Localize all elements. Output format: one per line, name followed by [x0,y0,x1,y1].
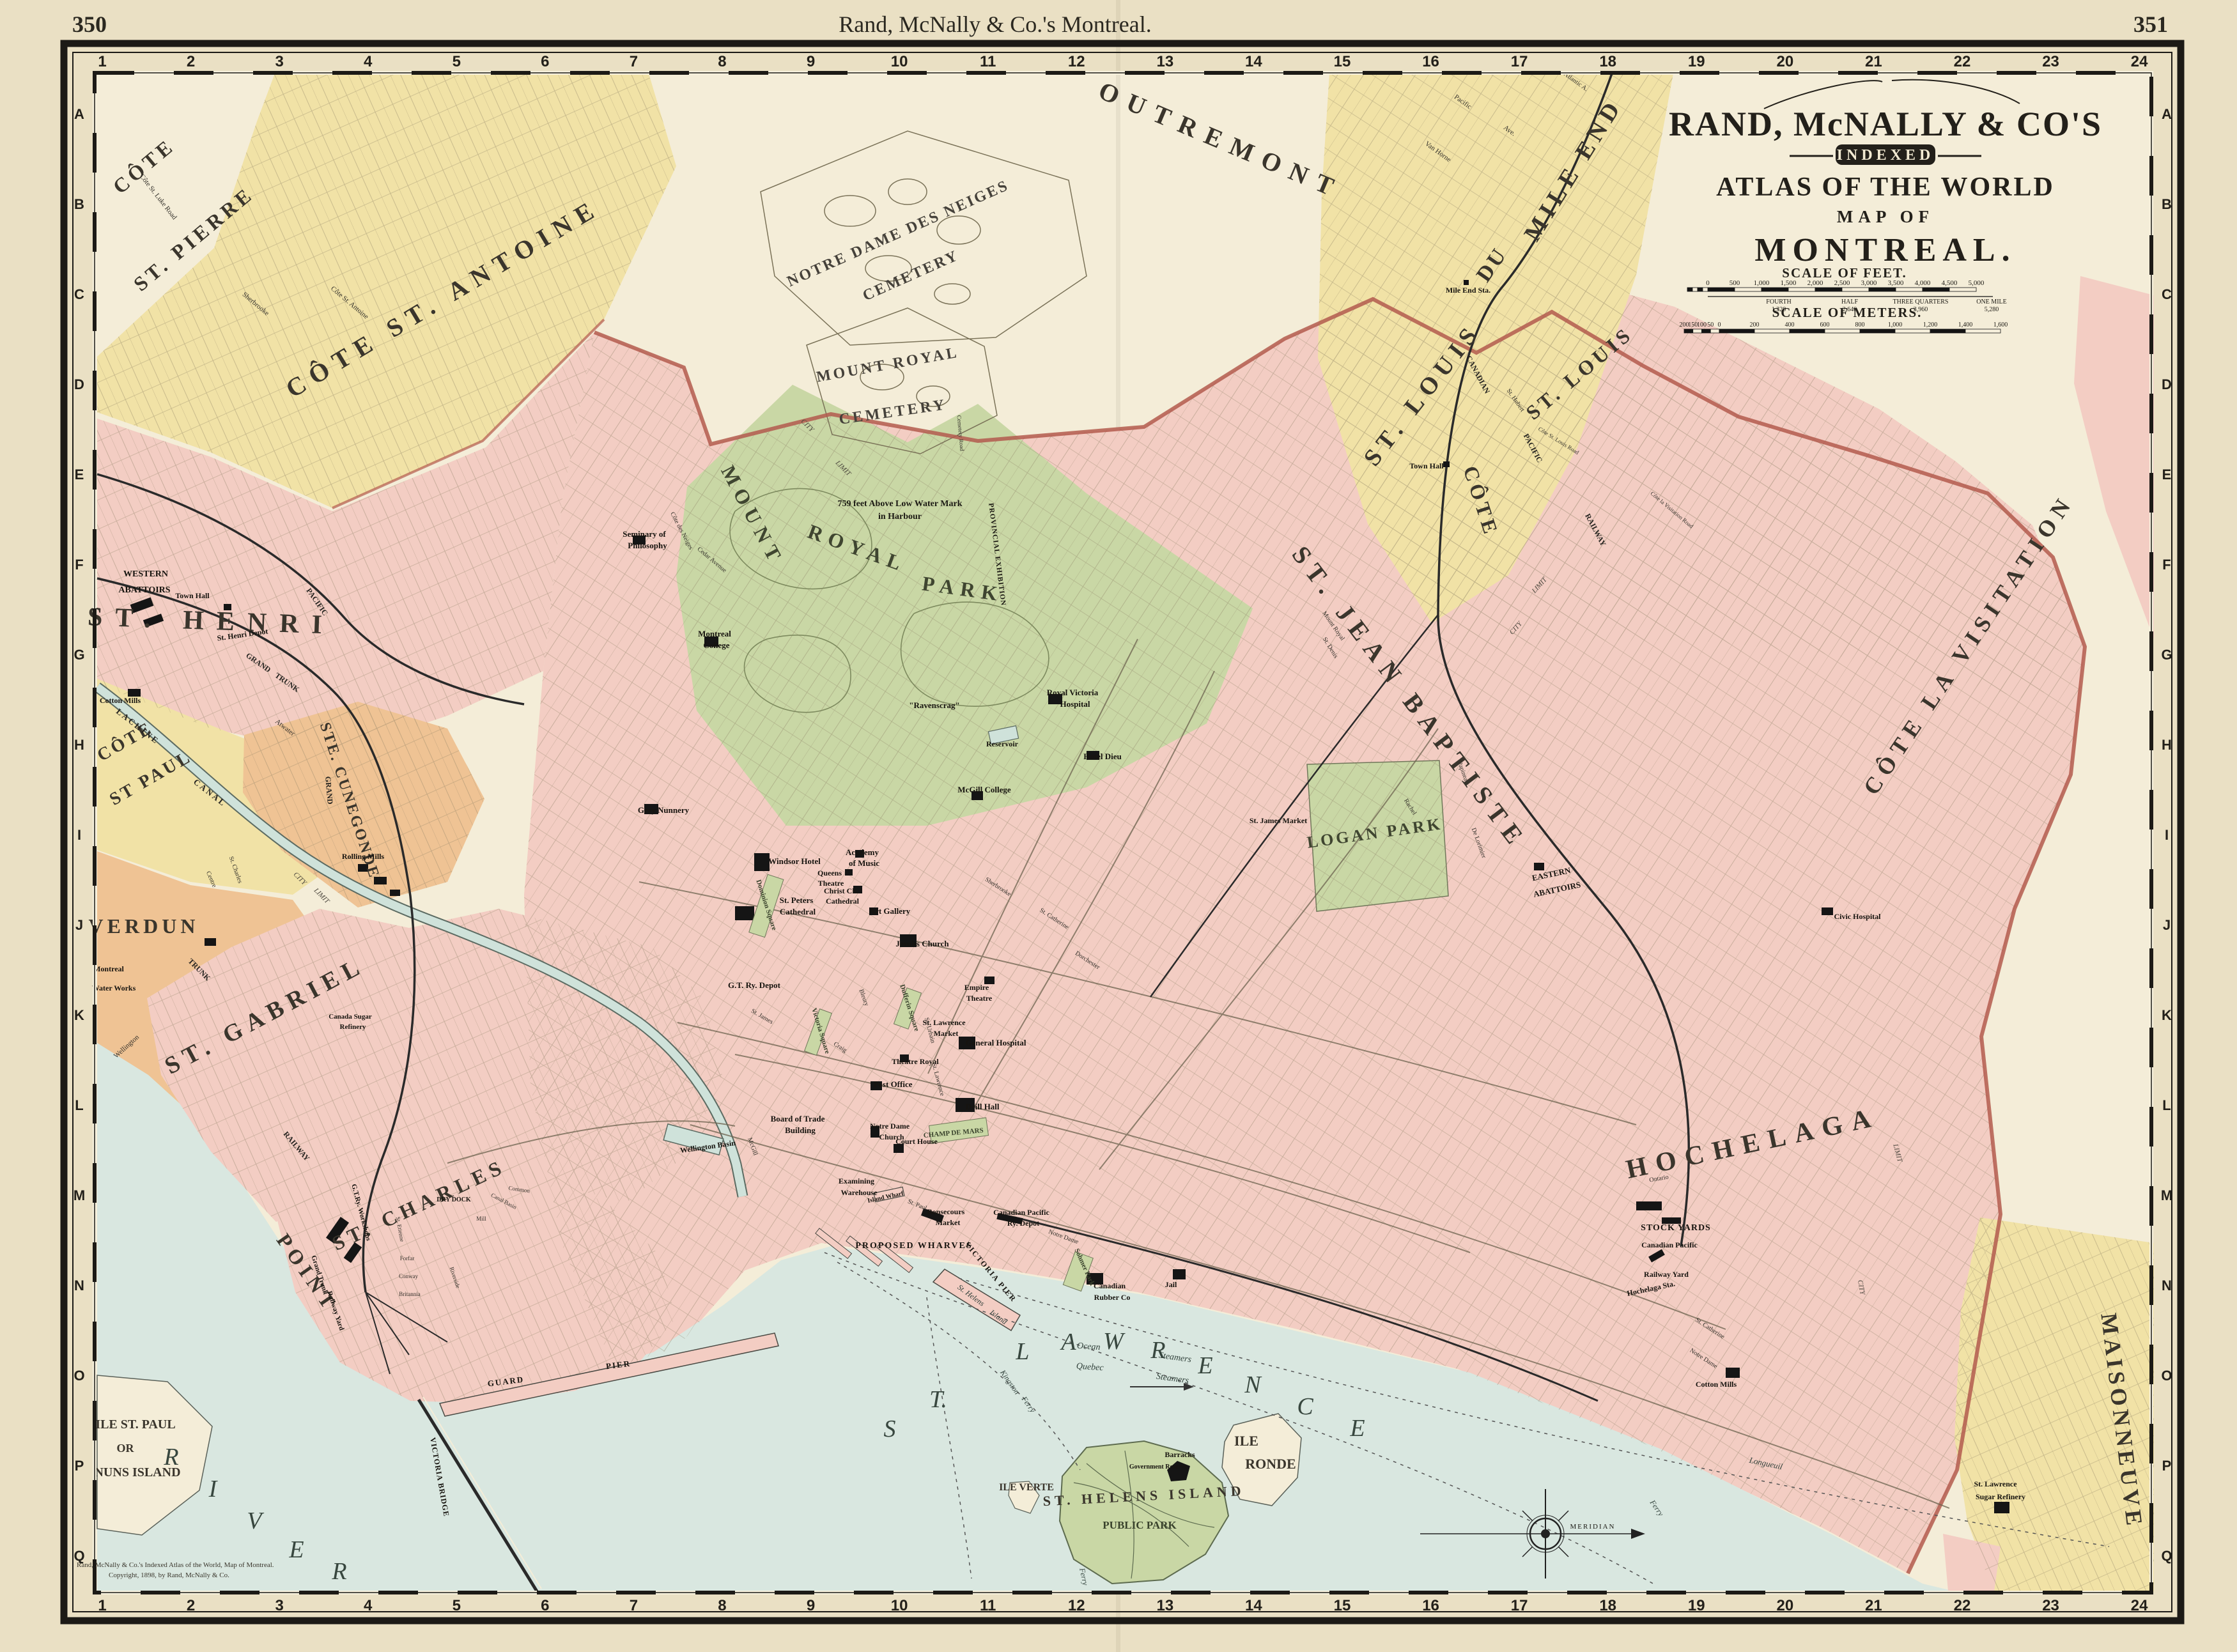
building-cotton-mills-east [1726,1368,1740,1378]
scale-meters-tick: 800 [1855,321,1865,328]
grid-column-14: 14 [1245,53,1262,70]
scale-feet-tick: 500 [1730,279,1740,287]
landmark-cp-ry-depot: Canadian Pacific [993,1208,1049,1217]
landmark-ravenscrag: "Ravenscrag" [909,700,959,710]
water-river-letter: R [163,1444,178,1471]
building-st-peters [735,906,754,920]
grid-row-F: F [75,557,83,573]
scale-meters-tick: 600 [1820,321,1830,328]
grid-row-O: O [74,1368,84,1384]
landmark-rolling-mills: Rolling Mills [342,852,385,861]
landmark-jesuits-church: Jesuits Church [895,939,949,948]
scale-meters-bar-segment [1790,329,1825,333]
grid-column-19: 19 [1688,53,1705,70]
landmark-general-hospital: General Hospital [966,1038,1026,1047]
park-public: PUBLIC PARK [1103,1519,1177,1531]
landmark-board-of-trade: Building [785,1125,816,1135]
island-ile-verte: ILE VERTE [999,1482,1054,1493]
scale-feet-bar-extension [1692,288,1698,291]
landmark-water-works: Water Works [92,984,136,992]
scale-feet-tick: 4,000 [1915,279,1931,287]
grid-row-H: H [2162,737,2172,753]
landmark-canadian-rubber-co: Rubber Co [1094,1293,1131,1302]
landmark-proposed-wharves: PROPOSED WHARVES [855,1241,972,1251]
landmark-royal-victoria-hospital: Royal Victoria [1047,688,1099,697]
landmark-montreal-college: Montreal [698,629,731,638]
title-city: MONTREAL. [1754,232,2016,268]
landmark-royal-victoria-hospital: Hospital [1060,699,1090,709]
scale-feet-tick: 5,000 [1969,279,1985,287]
grid-column-10: 10 [891,53,908,70]
landmark-st-peters-cathedral: St. Peters [780,895,814,905]
elevation-note: 759 feet Above Low Water Mark [837,499,962,509]
landmark-empire-theatre: Empire [964,983,989,992]
landmark-civic-hospital: Civic Hospital [1834,912,1881,921]
scale-feet-bar-segment [1761,288,1788,291]
water-st-lawrence-letter: S [884,1416,896,1442]
atlas-page-spread: { "page": { "left_page_number": "350", "… [0,0,2237,1652]
grid-row-G: G [2161,647,2172,663]
landmark-western-abattoirs: ABATTOIRS [118,585,170,595]
scale-feet-bar-extension [1687,288,1692,291]
building-rolling-mills [390,890,400,896]
building-mile-end-station [1464,280,1469,285]
title-atlas: ATLAS OF THE WORLD [1716,173,2055,202]
scale-feet-bar-segment [1815,288,1842,291]
copyright-line-2: Copyright, 1898, by Rand, McNally & Co. [109,1571,229,1579]
grid-row-O: O [2161,1368,2172,1384]
landmark-christ-church-cathedral: Cathedral [826,897,860,906]
water-st-lawrence-letter: N [1244,1371,1262,1398]
landmark-hotel-dieu: Hotel Dieu [1083,752,1122,761]
landmark-st-peters-cathedral: Cathedral [780,907,816,916]
landmark-queens-theatre: Queens [817,868,842,877]
landmark-cp-ry-depot: Ry. Depot [1007,1219,1039,1228]
scale-meters-tick: 200 [1680,321,1689,328]
grid-column-6: 6 [541,53,549,70]
landmark-barracks: Barracks [1165,1450,1195,1459]
landmark-st-lawrence-market: Market [934,1029,959,1038]
building-mile-end-town-hall [1443,461,1450,467]
scale-feet-title: SCALE OF FEET. [1782,265,1907,281]
landmark-sugar-refinery: Canada Sugar [329,1013,372,1021]
scale-meters-bar-extension [1693,329,1702,333]
landmark-gt-ry-depot: G.T. Ry. Depot [728,980,781,990]
page-header: Rand, McNally & Co.'s Montreal. [839,12,1151,37]
landmark-windsor-hotel: Windsor Hotel [768,856,821,866]
street-forfar: Forfar [400,1255,415,1262]
scale-meters-bar-segment [1754,329,1790,333]
landmark-st-henri-town-hall: Town Hall [175,591,210,600]
title-map-of: MAP OF [1837,207,1934,226]
grid-row-D: D [2162,376,2172,392]
scale-feet-bar-segment [1842,288,1869,291]
landmark-bonsecours-market: Market [936,1218,961,1227]
landmark-montreal-college: College [703,640,729,650]
street-conway: Conway [399,1273,418,1279]
grid-column-24: 24 [2131,53,2148,70]
scale-meters-tick: 400 [1785,321,1795,328]
landmark-st-lawrence-sugar-refinery: St. Lawrence [1974,1479,2017,1488]
grid-column-21: 21 [1865,53,1882,70]
grid-row-N: N [2162,1278,2172,1293]
title-indexed: INDEXED [1837,147,1935,164]
map-canvas: CÔTEST. PIERRECÔTE ST. ANTOINEST. HENRIC… [0,0,2237,1652]
scale-meters-bar-segment [1895,329,1930,333]
elevation-note: in Harbour [878,512,922,521]
landmark-christ-church-cathedral: Christ Ch. [824,886,858,895]
landmark-western-abattoirs: WESTERN [123,569,168,579]
landmark-cotton-mills-west: Cotton Mills [100,696,141,705]
grid-row-P: P [2162,1458,2172,1474]
water-river-letter: I [208,1476,219,1502]
district-verdun: VERDUN [89,915,199,938]
grid-row-H: H [74,737,84,753]
grid-column-7: 7 [630,53,638,70]
island-ile-st-paul: OR [117,1442,135,1455]
landmark-canadian-rubber-co: Canadian [1094,1281,1126,1290]
title-publisher: RAND, McNALLY & CO'S [1669,105,2102,143]
landmark-mile-end-town-hall: Town Hall [1409,461,1444,470]
water-st-lawrence-letter: W [1103,1328,1126,1355]
landmark-dry-dock: DRY DOCK [437,1196,471,1203]
building-rolling-mills [374,877,387,884]
scale-meters-tick: 100 [1697,321,1707,328]
scale-meters-tick: 1,600 [1993,321,2008,328]
scale-meters-tick: 1,400 [1958,321,1973,328]
grid-row-D: D [74,376,84,392]
grid-column-22: 22 [1954,53,1971,70]
grid-row-C: C [74,286,84,302]
scale-feet-tick: 1,000 [1754,279,1770,287]
grid-column-12: 12 [1068,53,1085,70]
scale-feet-bar-segment [1896,288,1923,291]
building-civic-hospital [1822,907,1833,915]
page-number-right: 351 [2133,12,2168,37]
grid-column-4: 4 [364,53,373,70]
landmark-stock-yards: STOCK YARDS [1641,1223,1711,1233]
landmark-sugar-refinery: Refinery [340,1023,366,1031]
grid-column-17: 17 [1511,53,1528,70]
water-river-letter: V [247,1508,264,1534]
water-st-lawrence-letter: C [1297,1393,1313,1420]
grid-row-L: L [2162,1097,2171,1113]
scale-meters-tick: 50 [1707,321,1714,328]
copyright-line-1: Rand, McNally & Co.'s Indexed Atlas of t… [77,1561,274,1569]
water-st-lawrence-letter: E [1349,1415,1365,1442]
water-ocean-steamers: Ocean [1076,1341,1101,1353]
grid-row-F: F [2162,557,2171,573]
scale-feet-bar-extension [1703,288,1708,291]
building-queens-theatre [845,869,853,876]
landmark-academy-of-music: of Music [849,858,879,868]
landmark-examining-warehouse: Warehouse [840,1188,878,1197]
landmark-jail: Jail [1165,1280,1177,1289]
grid-column-3: 3 [275,53,283,70]
landmark-empire-theatre: Theatre [966,994,993,1003]
grid-row-C: C [2162,286,2172,302]
grid-row-A: A [74,106,84,122]
scale-meters-bar-segment [1965,329,2001,333]
grid-row-K: K [2162,1007,2172,1023]
grid-column-23: 23 [2042,53,2059,70]
scale-feet-bar-segment [1949,288,1976,291]
scale-meters-tick: 1,200 [1923,321,1938,328]
landmark-art-gallery: Art Gallery [869,906,911,916]
grid-column-13: 13 [1156,53,1173,70]
grid-row-M: M [74,1187,85,1203]
landmark-water-works: Montreal [93,964,124,973]
grid-row-J: J [2163,917,2171,933]
landmark-government-reserve: Government Reserve [1129,1463,1188,1471]
landmark-cotton-mills-east: Cotton Mills [1696,1380,1737,1389]
island-ile-st-paul: ILE ST. PAUL [95,1417,175,1432]
scale-mile-fraction: ONE MILE [1976,298,2007,305]
grid-column-9: 9 [807,53,815,70]
landmark-cp-railway-yard: Railway Yard [1644,1270,1689,1279]
grid-column-1: 1 [98,53,106,70]
scale-meters-bar-extension [1702,329,1711,333]
landmark-st-lawrence-sugar-refinery: Sugar Refinery [1976,1492,2025,1501]
scale-meters-bar-segment [1719,329,1754,333]
island-ile-ronde: RONDE [1245,1456,1296,1472]
landmark-drill-hall: Drill Hall [965,1102,999,1111]
landmark-bonsecours-market: Bonsecours [927,1207,965,1216]
grid-row-B: B [74,196,84,212]
scale-meters-tick: 0 [1718,321,1721,328]
street-britannia: Britannia [399,1291,421,1297]
water-st-lawrence-letter: E [1197,1352,1212,1379]
grid-column-11: 11 [980,53,996,70]
grid-column-20: 20 [1776,53,1793,70]
water-river-letter: E [288,1536,304,1563]
landmark-mile-end-station: Mile End Sta. [1446,286,1490,295]
grid-row-I: I [2165,827,2169,843]
scale-meters-bar-extension [1684,329,1693,333]
compass-meridian-label: MERIDIAN [1570,1523,1616,1531]
water-st-lawrence-letter: T. [929,1386,947,1413]
scale-meters-bar-segment [1930,329,1965,333]
grid-row-E: E [2162,467,2172,482]
grid-row-K: K [74,1007,84,1023]
grid-row-J: J [75,917,83,933]
grid-row-I: I [77,827,81,843]
landmark-seminary-of-philosophy: Seminary of [623,529,666,539]
street-mill: Mill [476,1216,486,1222]
water-st-lawrence-letter: L [1015,1338,1029,1365]
grid-row-L: L [75,1097,83,1113]
water-river-letter: R [331,1558,346,1585]
landmark-reservoir: Reservoir [986,739,1019,748]
building-water-works [205,938,216,946]
building-eastern-abattoirs [1534,863,1544,870]
grid-row-B: B [2162,196,2172,212]
landmark-grey-nunnery: Grey Nunnery [638,805,690,815]
scale-meters-bar-segment [1860,329,1895,333]
page-number-left: 350 [72,12,107,37]
scale-meters-tick: 150 [1688,321,1698,328]
scale-meters-bar-segment [1825,329,1860,333]
grid-row-A: A [2162,106,2172,122]
grid-row-P: P [75,1458,84,1474]
grid-row-G: G [74,647,84,663]
scale-meters-title: SCALE OF METERS. [1772,305,1923,320]
scale-meters-tick: 200 [1750,321,1760,328]
landmark-seminary-of-philosophy: Philosophy [628,541,667,550]
scale-feet-bar-extension [1698,288,1703,291]
landmark-mcgill-college: McGill College [957,785,1011,794]
landmark-board-of-trade: Board of Trade [771,1114,825,1123]
grid-row-N: N [74,1278,84,1293]
scale-feet-bar-segment [1869,288,1896,291]
landmark-notre-dame-church: Notre Dame [870,1122,910,1131]
building-jail [1173,1269,1186,1279]
landmark-post-office: Post Office [873,1079,912,1089]
grid-column-2: 2 [187,53,195,70]
landmark-academy-of-music: Academy [846,847,879,857]
scale-feet-bar-segment [1735,288,1761,291]
scale-feet-bar-segment [1923,288,1949,291]
scale-meters-bar-extension [1710,329,1719,333]
landmark-cp-railway-yard: Canadian Pacific [1641,1240,1698,1249]
water-st-lawrence-letter: A [1059,1329,1076,1355]
scale-feet-tick: 4,500 [1942,279,1958,287]
scale-meters-tick: 1,000 [1888,321,1903,328]
scale-feet-tick: 0 [1706,279,1710,287]
water-quebec-steamers: Quebec [1076,1362,1104,1373]
building-sugar-refinery [1994,1502,2009,1513]
grid-column-18: 18 [1599,53,1616,70]
grid-column-8: 8 [718,53,726,70]
grid-column-5: 5 [453,53,461,70]
building-stock-yards [1636,1201,1662,1210]
scale-feet-bar-segment [1788,288,1815,291]
grid-column-16: 16 [1422,53,1439,70]
island-ile-ronde: ILE [1234,1433,1258,1449]
grid-row-Q: Q [2161,1548,2172,1564]
scale-feet-bar-segment [1708,288,1735,291]
grid-row-M: M [2161,1187,2172,1203]
grid-column-15: 15 [1334,53,1351,70]
grid-row-E: E [75,467,84,482]
scale-mile-fraction: 5,280 [1985,306,1999,313]
building-windsor-hotel [754,853,770,871]
landmark-st-james-market: St. James Market [1250,816,1307,825]
landmark-examining-warehouse: Examining [839,1177,874,1185]
